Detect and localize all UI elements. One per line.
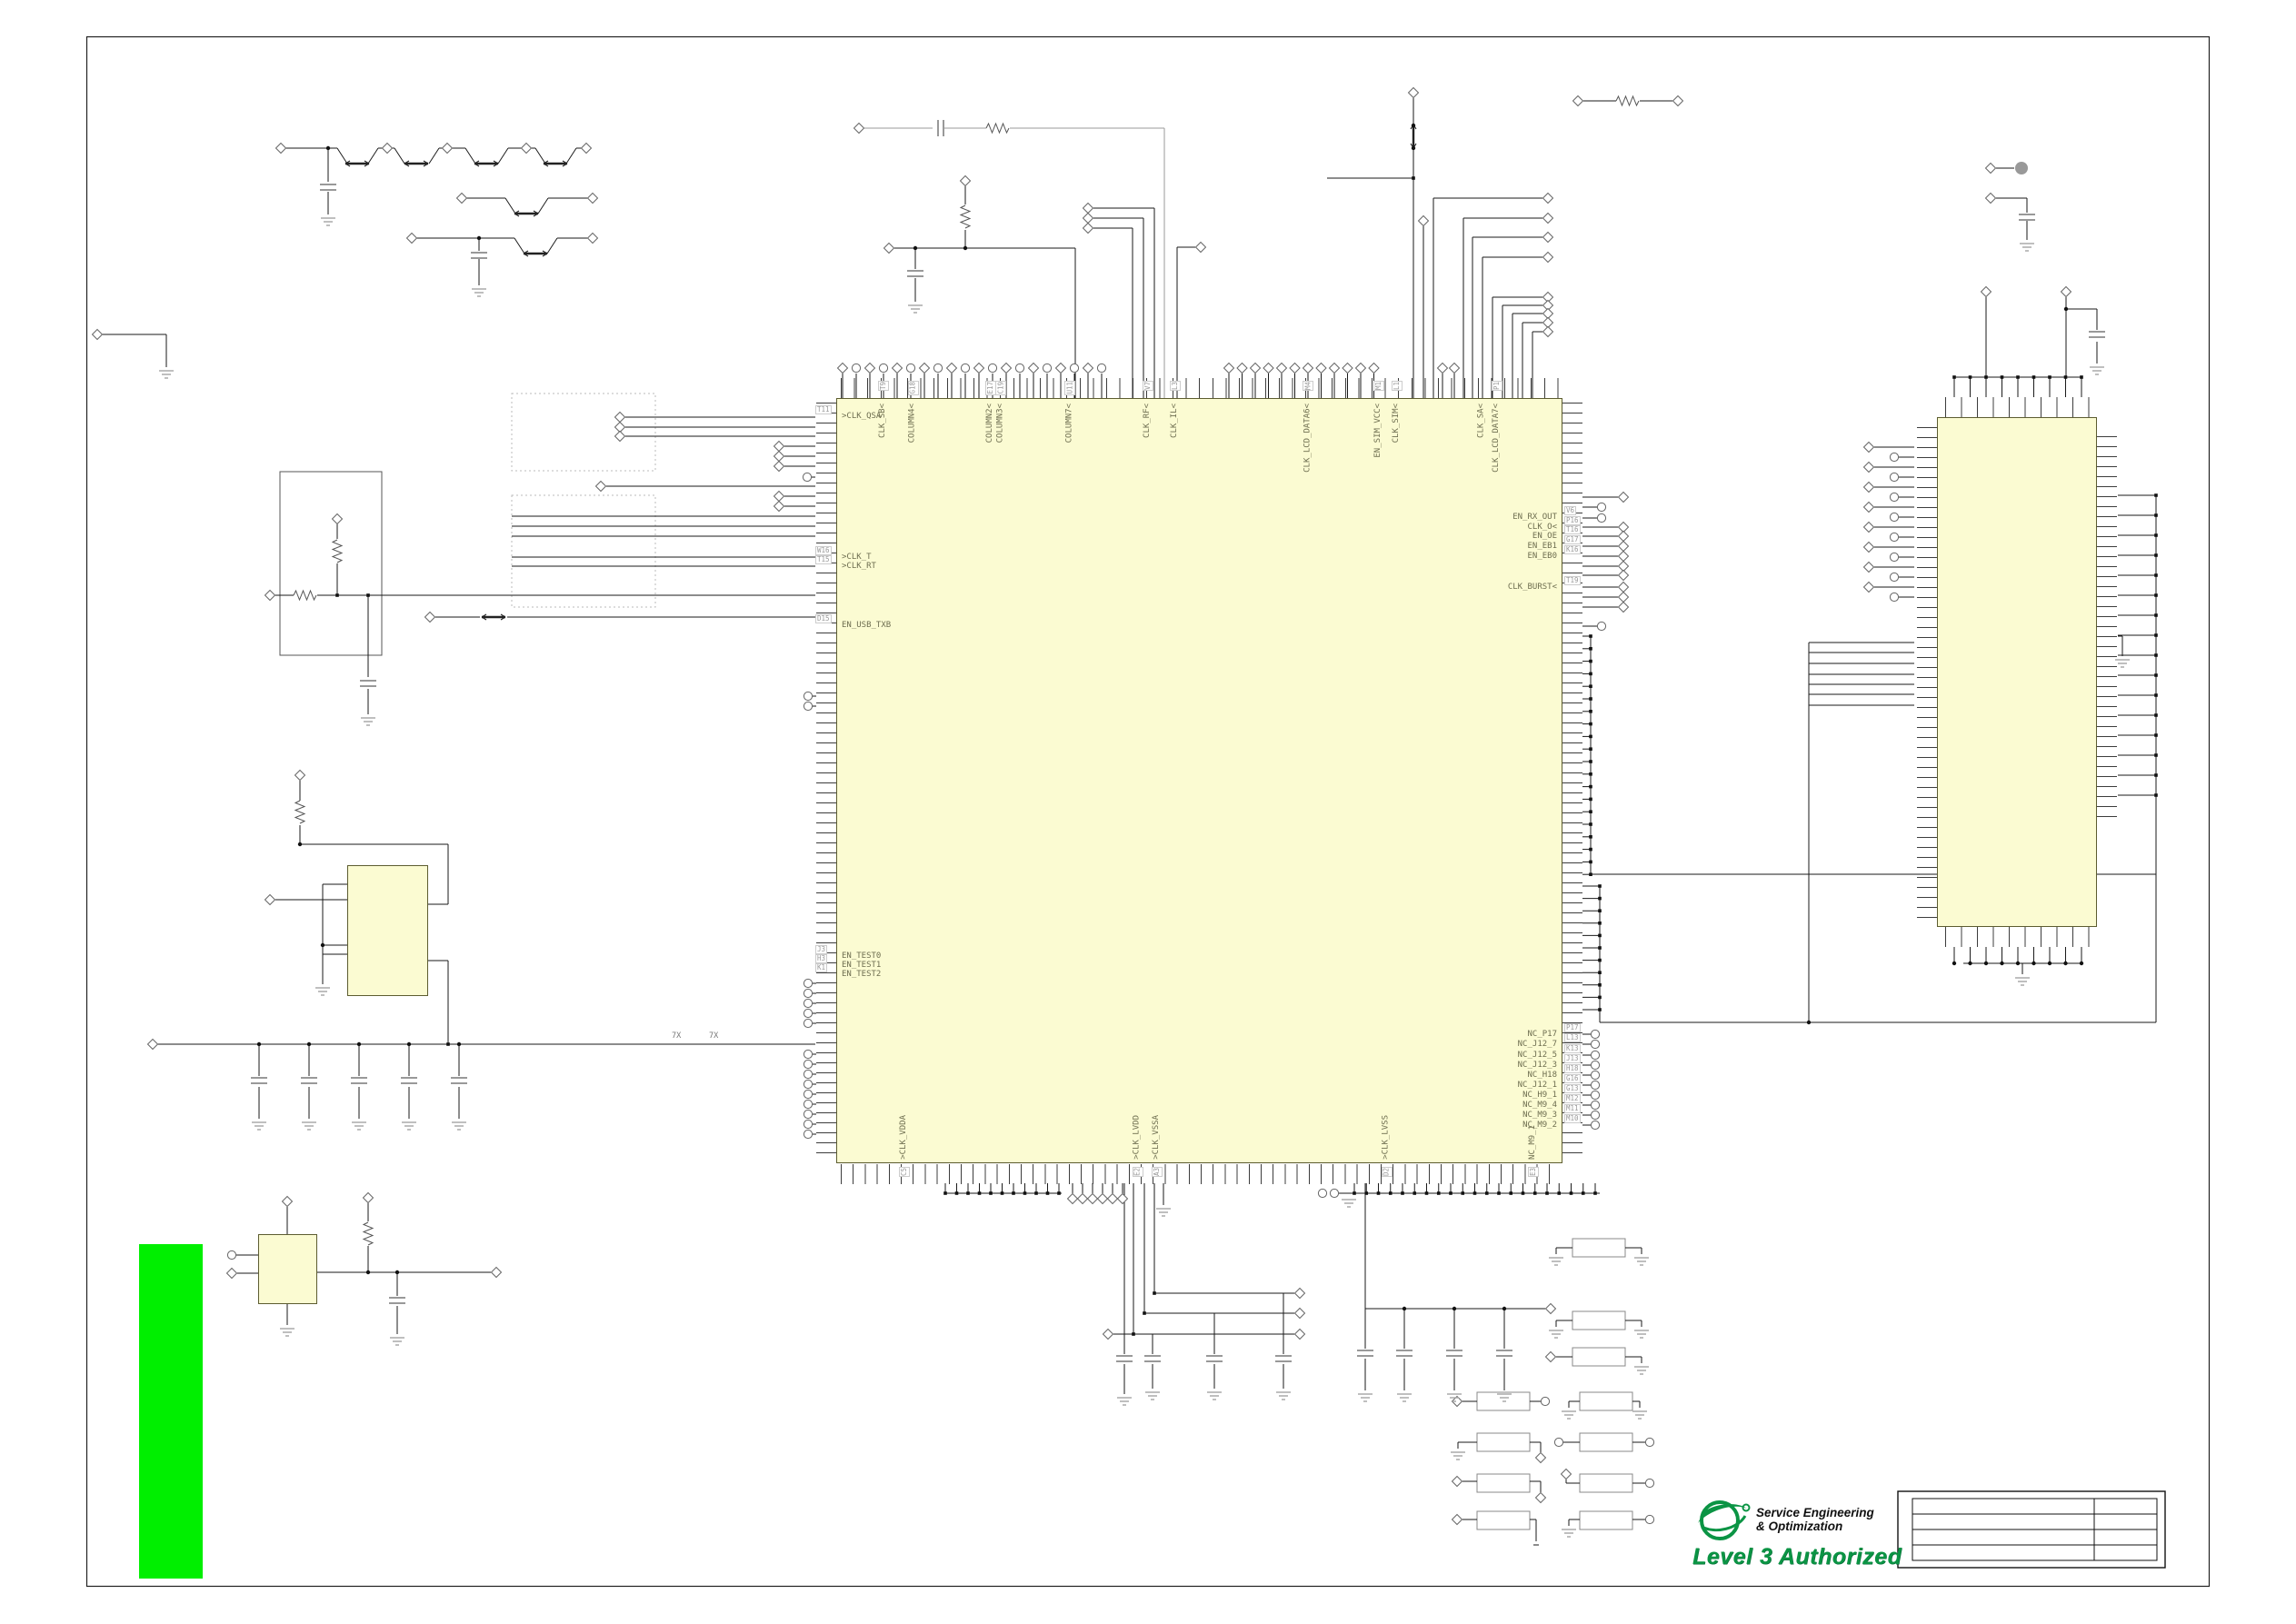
junction-square-icon [1598, 983, 1602, 987]
pin-label: EN_OE [1532, 532, 1557, 541]
circle-port-icon [1015, 364, 1023, 372]
junction-square-icon [2080, 375, 2083, 379]
circle-port-icon [1890, 493, 1898, 501]
diamond-port-icon [1295, 1289, 1305, 1299]
diamond-port-icon [1543, 194, 1553, 204]
diamond-port-icon [1103, 1330, 1113, 1340]
ground-icon [1342, 1200, 1356, 1207]
diamond-port-icon [1864, 583, 1874, 593]
junction-square-icon [335, 593, 339, 597]
diamond-port-icon [1864, 523, 1874, 533]
pin-label: NC_M9_3 [1522, 1111, 1557, 1120]
circle-port-icon [1318, 1189, 1326, 1197]
junction-square-icon [1132, 1332, 1135, 1336]
capacitor-icon [1446, 1350, 1462, 1356]
ground-icon [315, 988, 330, 995]
circle-port-icon [804, 979, 812, 987]
diamond-port-icon [615, 413, 625, 423]
diamond-port-icon [1452, 1477, 1462, 1487]
wire [547, 238, 557, 254]
ferrite-bead-icon [544, 161, 567, 166]
junction-square-icon [1589, 822, 1592, 826]
junction-square-icon [1598, 897, 1602, 901]
diamond-port-icon [227, 1269, 237, 1279]
rail-label-7x-b: 7X [709, 1031, 718, 1041]
junction-dot-icon [1968, 961, 1972, 965]
junction-square-icon [1598, 971, 1602, 974]
junction-square-icon [1984, 375, 1988, 379]
ground-icon [1358, 1394, 1373, 1401]
capacitor-icon [351, 1078, 367, 1083]
main-ic-block [836, 398, 1562, 1163]
ground-icon [1156, 1209, 1171, 1216]
diamond-port-icon [1083, 224, 1093, 234]
pin-number: E3 [1528, 1167, 1539, 1177]
circle-port-icon [852, 364, 860, 372]
junction-dot-icon [2064, 307, 2068, 311]
diamond-port-icon [1864, 543, 1874, 553]
junction-square-icon [1969, 375, 1972, 379]
junction-square-icon [955, 1191, 959, 1195]
diamond-port-icon [1536, 1493, 1546, 1503]
pin-number: J13 [1564, 1054, 1581, 1063]
junction-square-icon [2154, 513, 2158, 517]
capacitor-icon [301, 1078, 317, 1083]
junction-square-icon [1545, 1191, 1549, 1195]
pin-number: P1 [1492, 381, 1502, 391]
main-ic-pins-left [816, 403, 836, 1159]
circle-port-icon [804, 1090, 812, 1098]
junction-square-icon [1582, 1191, 1585, 1195]
diamond-port-icon [1619, 493, 1629, 503]
diamond-port-icon [1562, 1470, 1572, 1480]
diamond-port-icon [1263, 364, 1273, 374]
junction-square-icon [1412, 176, 1415, 180]
capacitor-icon [320, 184, 336, 190]
wire [514, 238, 524, 254]
pin-number: T11 [815, 405, 832, 414]
ground-icon [1632, 1411, 1647, 1419]
resistor-body [1572, 1311, 1625, 1330]
capacitor-icon [1396, 1350, 1413, 1356]
junction-square-icon [1589, 785, 1592, 789]
capacitor-icon [907, 271, 923, 276]
diamond-port-icon [588, 234, 598, 244]
junction-square-icon [1057, 1191, 1061, 1195]
junction-square-icon [2154, 553, 2158, 557]
pin-number: L3 [1170, 381, 1181, 391]
capacitor-icon [1116, 1356, 1133, 1361]
junction-square-icon [2154, 713, 2158, 717]
circle-port-icon [906, 364, 914, 372]
diamond-port-icon [276, 144, 286, 154]
ground-icon [1549, 1258, 1563, 1265]
ground-icon [1117, 1398, 1132, 1405]
pin-number: T15 [815, 555, 832, 564]
pin-label: CLK_RF< [1143, 404, 1152, 438]
logo-level3: Level 3 Authorized [1692, 1544, 1929, 1570]
junction-square-icon [1598, 884, 1602, 888]
junction-square-icon [1598, 959, 1602, 962]
wire [498, 148, 508, 164]
ferrite-bead-icon [514, 211, 538, 216]
capacitor-icon [389, 1298, 405, 1303]
circle-port-icon [988, 364, 996, 372]
circle-port-icon [1330, 1189, 1338, 1197]
diamond-port-icon [947, 364, 957, 374]
diamond-port-icon [1316, 364, 1326, 374]
wire [394, 148, 404, 164]
capacitor-icon [1496, 1350, 1512, 1356]
junction-square-icon [2001, 375, 2004, 379]
diamond-port-icon [1573, 96, 1583, 106]
junction-square-icon [2016, 375, 2020, 379]
diamond-port-icon [1619, 593, 1629, 603]
resistor-body [1477, 1511, 1530, 1529]
resistor-body [1572, 1239, 1625, 1257]
diamond-port-icon [1068, 1194, 1078, 1204]
junction-dot-icon [2080, 961, 2083, 965]
diamond-port-icon [1619, 542, 1629, 552]
wire [538, 198, 548, 214]
diamond-port-icon [1619, 583, 1629, 593]
pin-label: >CLK_VSSA [1152, 1115, 1161, 1160]
wire [337, 148, 347, 164]
diamond-port-icon [893, 364, 903, 374]
diamond-port-icon [774, 442, 784, 452]
diamond-port-icon [1982, 287, 1992, 297]
ferrite-bead-icon [1411, 125, 1416, 148]
circle-port-icon [933, 364, 942, 372]
diamond-port-icon [1330, 364, 1340, 374]
diamond-port-icon [383, 144, 393, 154]
wire [429, 148, 439, 164]
junction-square-icon [1589, 848, 1592, 852]
pin-label: COLUMN3< [995, 404, 1004, 443]
junction-square-icon [1437, 1191, 1441, 1195]
diamond-port-icon [774, 452, 784, 462]
pin-number: M1 [1373, 381, 1384, 391]
circle-port-icon [804, 1110, 812, 1118]
pin-label: EN_EB1 [1527, 542, 1557, 551]
secondary-ic-pins-right [2097, 436, 2117, 818]
capacitor-icon [401, 1078, 417, 1083]
pin-number: T16 [1564, 525, 1581, 534]
diamond-port-icon [1083, 204, 1093, 214]
diamond-port-icon [1864, 443, 1874, 453]
pin-label: >CLK_LVSS [1382, 1115, 1391, 1160]
ground-icon [1145, 1392, 1160, 1400]
capacitor-icon [2019, 214, 2035, 220]
diamond-port-icon [295, 771, 305, 781]
junction-dot-icon [2000, 961, 2003, 965]
junction-square-icon [2154, 793, 2158, 797]
junction-dot-icon [1452, 1307, 1456, 1310]
diamond-port-icon [1419, 216, 1429, 226]
revision-highlight-bar [139, 1244, 203, 1579]
circle-port-icon [803, 473, 811, 481]
ground-icon [1276, 1392, 1291, 1400]
pin-number: K16 [1564, 545, 1581, 554]
pin-label: CLK_LCD_DATA7< [1492, 404, 1501, 473]
diamond-port-icon [920, 364, 930, 374]
junction-square-icon [1589, 660, 1592, 663]
diamond-port-icon [1864, 503, 1874, 513]
pin-number: L13 [1564, 1033, 1581, 1042]
diamond-port-icon [1108, 1194, 1118, 1204]
diamond-port-icon [961, 176, 971, 186]
diamond-port-icon [457, 194, 467, 204]
pin-label: >CLK_LVDD [1133, 1115, 1142, 1160]
pin-label: NC_M9_1 [1528, 1125, 1537, 1160]
ferrite-bead-icon [524, 251, 547, 256]
regulator-ic-block [258, 1234, 317, 1304]
junction-square-icon [2048, 375, 2051, 379]
junction-square-icon [1598, 1008, 1602, 1011]
diamond-port-icon [1452, 1515, 1462, 1525]
junction-square-icon [1001, 1191, 1004, 1195]
diamond-port-icon [265, 895, 275, 905]
junction-dot-icon [1412, 146, 1415, 150]
ferrite-bead-icon [482, 614, 505, 620]
junction-dot-icon [407, 1042, 411, 1046]
junction-square-icon [2154, 573, 2158, 577]
pin-label: EN_RX_OUT [1512, 513, 1557, 522]
circle-port-icon [1645, 1515, 1653, 1523]
diamond-port-icon [1196, 243, 1206, 253]
junction-dot-icon [1502, 1307, 1506, 1310]
diamond-port-icon [1864, 563, 1874, 573]
junction-dot-icon [1403, 1307, 1406, 1310]
pin-number: E2 [1133, 1167, 1143, 1177]
junction-square-icon [1589, 872, 1592, 876]
circle-port-icon [1597, 622, 1605, 630]
ground-icon [2020, 244, 2034, 251]
circle-port-icon [961, 364, 969, 372]
circle-port-icon [804, 1120, 812, 1128]
ferrite-bead-icon [345, 161, 369, 166]
pin-number: G18 [908, 381, 919, 395]
junction-square-icon [2154, 733, 2158, 737]
ground-icon [2015, 978, 2030, 985]
resistor-body [1580, 1511, 1632, 1529]
capacitor-icon [1144, 1356, 1161, 1361]
circle-port-icon [804, 1070, 812, 1078]
junction-square-icon [1589, 697, 1592, 701]
pin-label: >CLK_QSA [842, 412, 881, 421]
diamond-port-icon [1295, 1330, 1305, 1340]
circle-port-icon [804, 1009, 812, 1017]
diamond-port-icon [582, 144, 592, 154]
diamond-port-icon [1295, 1309, 1305, 1319]
pin-label: CLK_SA< [1476, 404, 1485, 438]
diamond-port-icon [148, 1040, 158, 1050]
circle-port-icon [1890, 473, 1898, 481]
junction-dot-icon [913, 246, 917, 250]
diamond-port-icon [1078, 1194, 1088, 1204]
circle-port-icon [1591, 1081, 1599, 1089]
circle-port-icon [804, 999, 812, 1007]
pin-label: NC_H18 [1527, 1071, 1557, 1080]
junction-square-icon [1589, 634, 1592, 638]
pin-number: E17 [985, 381, 996, 395]
pin-label: NC_J12_1 [1518, 1081, 1557, 1090]
junction-square-icon [1401, 1191, 1404, 1195]
ground-icon [252, 1122, 266, 1130]
junction-square-icon [1589, 710, 1592, 713]
junction-dot-icon [2031, 961, 2035, 965]
pin-label: >CLK_RT [842, 562, 876, 571]
circle-port-icon [804, 702, 812, 710]
ground-icon [472, 289, 486, 296]
diamond-port-icon [1088, 1194, 1098, 1204]
diamond-port-icon [1083, 364, 1093, 374]
ground-icon [352, 1122, 366, 1130]
diamond-port-icon [1864, 463, 1874, 473]
circle-port-icon [1645, 1438, 1653, 1446]
junction-square-icon [2154, 673, 2158, 677]
ground-icon [1451, 1452, 1465, 1460]
junction-square-icon [1143, 1311, 1146, 1315]
pin-label: EN_SIM_VCC< [1373, 404, 1383, 458]
capacitor-icon [251, 1078, 267, 1083]
junction-dot-icon [366, 1270, 370, 1274]
vendor-logo: Service Engineering & Optimization Level… [1692, 1496, 1929, 1570]
junction-square-icon [1589, 810, 1592, 813]
ground-icon [390, 1338, 404, 1345]
diamond-port-icon [1409, 88, 1419, 98]
secondary-ic-pins-bottom [1945, 927, 2091, 947]
dnp-region-box-1 [512, 394, 655, 471]
diamond-port-icon [1002, 364, 1012, 374]
pin-label: COLUMN4< [908, 404, 917, 443]
junction-square-icon [1589, 760, 1592, 763]
junction-square-icon [1364, 1191, 1368, 1195]
capacitor-icon [2089, 332, 2105, 337]
diamond-port-icon [588, 194, 598, 204]
ground-icon [302, 1122, 316, 1130]
ground-icon [321, 218, 335, 225]
circle-port-icon [804, 1130, 812, 1138]
junction-square-icon [1589, 798, 1592, 802]
circle-port-icon [1070, 364, 1078, 372]
diamond-port-icon [1251, 364, 1261, 374]
junction-square-icon [1589, 735, 1592, 739]
resistor-icon [333, 540, 342, 563]
junction-square-icon [1952, 375, 1956, 379]
diamond-port-icon [1450, 364, 1460, 374]
diamond-port-icon [1546, 1352, 1556, 1362]
wire [368, 148, 378, 164]
pin-label: >CLK_T [842, 553, 872, 562]
pin-number: G13 [1564, 1084, 1581, 1093]
junction-square-icon [1533, 1191, 1537, 1195]
diamond-port-icon [838, 364, 848, 374]
diamond-port-icon [854, 124, 864, 134]
ground-icon [1207, 1392, 1222, 1400]
circle-port-icon [1591, 1061, 1599, 1069]
pin-label: EN_EB0 [1527, 552, 1557, 561]
junction-square-icon [1473, 1191, 1477, 1195]
ground-icon [2115, 660, 2130, 667]
diamond-port-icon [1986, 164, 1996, 174]
circle-port-icon [1890, 593, 1898, 601]
pin-number: G17 [1564, 535, 1581, 544]
diamond-port-icon [774, 462, 784, 472]
junction-square-icon [446, 1042, 450, 1046]
rail-label-7x-a: 7X [672, 1031, 681, 1041]
diamond-port-icon [1543, 327, 1553, 337]
diamond-port-icon [1619, 571, 1629, 581]
pin-number: K13 [1564, 1044, 1581, 1053]
circle-port-icon [1541, 1397, 1549, 1405]
junction-square-icon [2154, 633, 2158, 637]
junction-square-icon [1461, 1191, 1464, 1195]
ground-icon [402, 1122, 416, 1130]
diamond-port-icon [1224, 364, 1234, 374]
junction-square-icon [1353, 1191, 1356, 1195]
diamond-port-icon [774, 502, 784, 512]
circle-port-icon [804, 1080, 812, 1088]
junction-square-icon [1509, 1191, 1512, 1195]
ground-icon [1397, 1394, 1412, 1401]
junction-square-icon [1034, 1191, 1038, 1195]
diamond-port-icon [1619, 532, 1629, 542]
ground-icon [1549, 1330, 1563, 1338]
junction-square-icon [1589, 647, 1592, 651]
ground-icon [2090, 367, 2104, 374]
circle-port-icon [1591, 1030, 1599, 1038]
diamond-port-icon [425, 613, 435, 623]
circle-port-icon [1591, 1071, 1599, 1079]
pin-label: NC_P17 [1527, 1030, 1557, 1039]
junction-square-icon [989, 1191, 993, 1195]
junction-dot-icon [1807, 1021, 1811, 1024]
diamond-port-icon [2061, 287, 2071, 297]
wire [505, 198, 515, 214]
resistor-body [1477, 1474, 1530, 1492]
junction-square-icon [1589, 835, 1592, 839]
junction-square-icon [1522, 1191, 1525, 1195]
pin-label: COLUMN2< [985, 404, 994, 443]
junction-square-icon [1598, 934, 1602, 938]
diamond-port-icon [407, 234, 417, 244]
junction-square-icon [2032, 375, 2036, 379]
pin-number: T9 [878, 381, 889, 391]
diamond-port-icon [93, 330, 103, 340]
circle-port-icon [1591, 1111, 1599, 1119]
circle-port-icon [1597, 503, 1605, 511]
diamond-port-icon [1546, 1304, 1556, 1314]
junction-dot-icon [395, 1270, 399, 1274]
secondary-ic-pins-top [1945, 397, 2091, 417]
junction-square-icon [1485, 1191, 1489, 1195]
diamond-port-icon [1438, 364, 1448, 374]
circle-port-icon [1043, 364, 1051, 372]
globe-swoosh-icon [1692, 1496, 1752, 1543]
diamond-port-icon [1864, 483, 1874, 493]
pin-label: NC_M9_4 [1522, 1101, 1557, 1110]
junction-dot-icon [2048, 961, 2051, 965]
circle-port-icon [1591, 1121, 1599, 1129]
diamond-port-icon [522, 144, 532, 154]
diamond-port-icon [596, 482, 606, 492]
pin-number: H3 [815, 954, 827, 963]
diamond-port-icon [1290, 364, 1300, 374]
diamond-port-icon [615, 432, 625, 442]
resistor-body [1580, 1433, 1632, 1451]
circle-port-icon [804, 692, 812, 700]
